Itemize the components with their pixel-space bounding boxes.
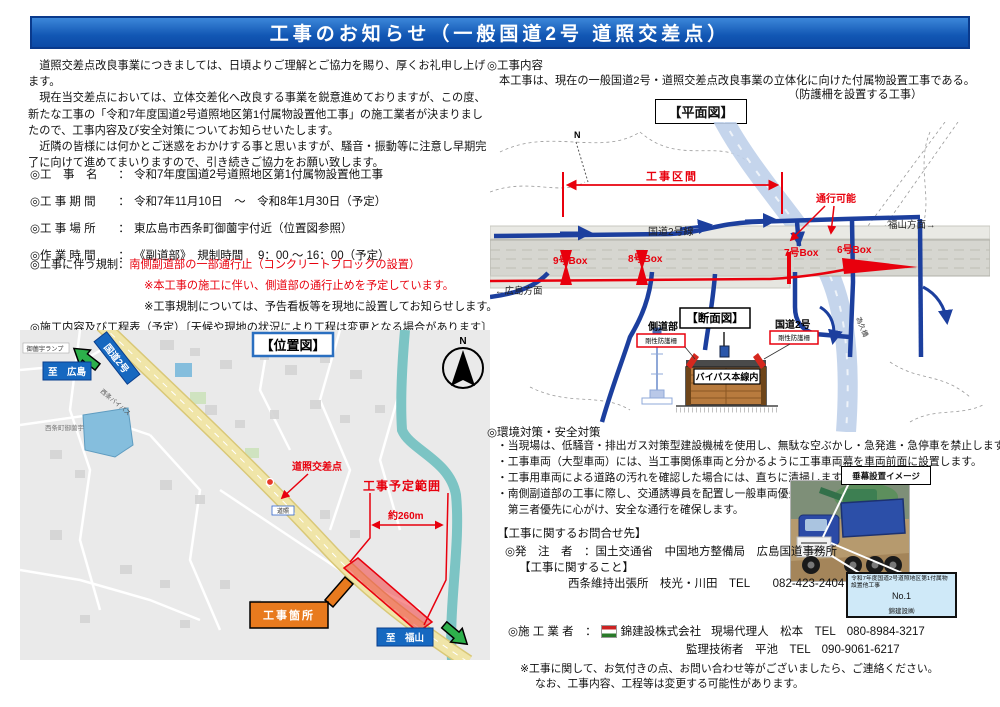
regulation-block: ◎工事に伴う規制：南側副道部の一部通行止（コンクリートブロックの設置） ※本工事… [30, 256, 498, 335]
plan-north-label: N [574, 130, 581, 140]
footer-note-2: なお、工事内容、工程等は変更する可能性があります。 [535, 675, 804, 691]
header-bar: 工事のお知らせ（一般国道2号 道照交差点） [30, 16, 970, 49]
contractor-label: ◎施 工 業 者 ： [508, 623, 597, 639]
fence-pointer-left [685, 347, 695, 359]
regulation-label: ◎工事に伴う規制： [30, 259, 129, 271]
truck-window [805, 519, 827, 531]
intro-paragraphs: 道照交差点改良事業につきましては、日頃よりご理解とご協力を賜り、厚くお礼申し上げ… [28, 58, 488, 172]
construction-notice-page: 工事のお知らせ（一般国道2号 道照交差点） 道照交差点改良事業につきましては、日… [0, 0, 1000, 707]
content-heading: ◎工事内容 [487, 57, 543, 73]
box-top-beam [686, 360, 766, 367]
box6-label: 6号Box [837, 244, 872, 256]
box7-label: 7号Box [784, 247, 819, 259]
bypass-label: バイパス本線内 [696, 371, 759, 382]
location-map: 道照 約260m 道照交差点 工事予定範囲 工事箇所 御薗宇ランプ 至 広島 国… [20, 330, 490, 660]
box8-label: 8号Box [628, 253, 663, 265]
route2-label: 国道2号 [775, 318, 811, 331]
env-bullet-4: ・南側副道部の工事に際し、交通誘導員を配置し一般車両優先 [497, 487, 999, 503]
plan-title-box: 【平面図】 [655, 99, 747, 124]
detail-row-name: ◎工 事 名 ： 令和7年度国道2号道照地区第1付属物設置他工事 [30, 166, 390, 182]
detail-row-period: ◎工 事 期 間 ： 令和7年11月10日 ～ 令和8年1月30日（予定） [30, 193, 390, 209]
page-title: 工事のお知らせ（一般国道2号 道照交差点） [270, 19, 730, 46]
contact-heading: 【工事に関するお問合せ先】 [497, 525, 647, 541]
company-flag-icon [601, 625, 617, 638]
box-post-right [761, 367, 766, 405]
hiroshima-label: ←広島方面 [495, 285, 543, 297]
plan-title: 【平面図】 [668, 102, 733, 121]
map-north-label: N [459, 336, 466, 347]
distance-label: 約260m [388, 509, 424, 522]
traffic-signal-icon [267, 479, 274, 486]
detail-row-location: ◎工 事 場 所 ： 東広島市西条町御薗宇付近（位置図参照） [30, 220, 390, 236]
contractor-rep: 現場代理人 松本 TEL 080-8984-3217 [711, 623, 925, 639]
crossing-small-label: 道照 [277, 507, 289, 515]
content-desc2: （防護柵を設置する工事） [788, 86, 922, 102]
sign-company: 錦建設㈱ [848, 605, 955, 615]
contractor-engineer: 監理技術者 平池 TEL 090-9061-6217 [686, 641, 900, 657]
equipment-shape [720, 346, 729, 357]
cross-section: 【断面図】 側道部 国道2号 剛性防護柵 剛性防護柵 バイパス本線内 [637, 308, 818, 410]
banner-label-box: 垂幕設置イメージ [841, 466, 931, 485]
range-label: 工事予定範囲 [363, 478, 441, 493]
office-line: 西条維持出張所 枝光・川田 TEL 082-423-2404 [568, 575, 844, 591]
route-label: 国道2号線 [648, 225, 694, 238]
banner-label: 垂幕設置イメージ [852, 470, 920, 482]
map-pond-small [175, 363, 192, 377]
client-label: ◎発 注 者 ： [505, 546, 596, 558]
crossing-label: 道照交差点 [292, 460, 342, 473]
box9-label: 9号Box [553, 255, 588, 267]
fence-label-right: 剛性防護柵 [778, 333, 810, 342]
site-label: 工事箇所 [263, 608, 315, 622]
regulation-note: ※工事規制については、予告看板等を現地に設置してお知らせします。 [144, 298, 498, 314]
map-title: 【位置図】 [260, 338, 325, 353]
env-bullet-1: ・当現場は、低騒音・排出ガス対策型建設機械を使用し、無駄な空ぶかし・急発進・急停… [497, 439, 999, 455]
client-value: 国土交通省 中国地方整備局 広島国道事務所 [596, 546, 838, 558]
fukuyama-label: 福山方面→ [888, 219, 936, 231]
fence-label-left: 剛性防護柵 [645, 336, 677, 345]
ramp-label: 御薗宇ランプ [27, 345, 65, 353]
plan-view: N [490, 122, 990, 432]
section-range-label: 工事区間 [646, 169, 698, 183]
sign-number: No.1 [848, 591, 955, 601]
fence-pointer-right [764, 344, 790, 359]
regulation-red-1: 南側副道部の一部通行止（コンクリートブロックの設置） [129, 259, 420, 271]
to-fukuyama-label: 至 福山 [386, 632, 424, 644]
truck-bed [841, 499, 905, 537]
plan-north-line [576, 142, 588, 182]
sign-line-1: 令和7年度国道2号道照地区第1付属物設置他工事 [848, 574, 955, 590]
client-line: ◎発 注 者 ：国土交通省 中国地方整備局 広島国道事務所 [505, 543, 837, 559]
box-post-left [686, 367, 691, 405]
intro-line-1: 道照交差点改良事業につきましては、日頃よりご理解とご協力を賜り、厚くお礼申し上げ… [28, 58, 488, 90]
contractor-company: 錦建設株式会社 [621, 623, 702, 639]
env-bullet-5: 第三者優先に心がけ、安全な通行を確保します。 [497, 503, 999, 519]
sign-board: 令和7年度国道2号道照地区第1付属物設置他工事 No.1 錦建設㈱ [846, 572, 957, 618]
passable-label: 通行可能 [816, 192, 856, 205]
side-road-label: 側道部 [647, 320, 678, 333]
env-heading: ◎環境対策・安全対策 [487, 424, 601, 440]
bridge-label: 為久橋 [854, 315, 870, 338]
intro-line-2: 現在当交差点においては、立体交差化へ改良する事業を鋭意進めておりますが、この度、… [28, 90, 488, 139]
town-label: 西条町御薗宇 [45, 423, 85, 432]
regulation-red-2: ※本工事の施工に伴い、側道部の通行止めを予定しています。 [144, 277, 498, 293]
contact-about: 【工事に関すること】 [519, 559, 634, 575]
footer-note-1: ※工事に関して、お気付きの点、お問い合わせ等がございましたら、ご連絡ください。 [520, 660, 938, 676]
contractor-line: ◎施 工 業 者 ： 錦建設株式会社 現場代理人 松本 TEL 080-8984… [508, 623, 925, 639]
to-hiroshima-label: 至 広島 [48, 366, 87, 378]
section-title: 【断面図】 [686, 311, 744, 325]
project-details: ◎工 事 名 ： 令和7年度国道2号道照地区第1付属物設置他工事 ◎工 事 期 … [30, 166, 390, 263]
truck-photo [790, 480, 910, 582]
